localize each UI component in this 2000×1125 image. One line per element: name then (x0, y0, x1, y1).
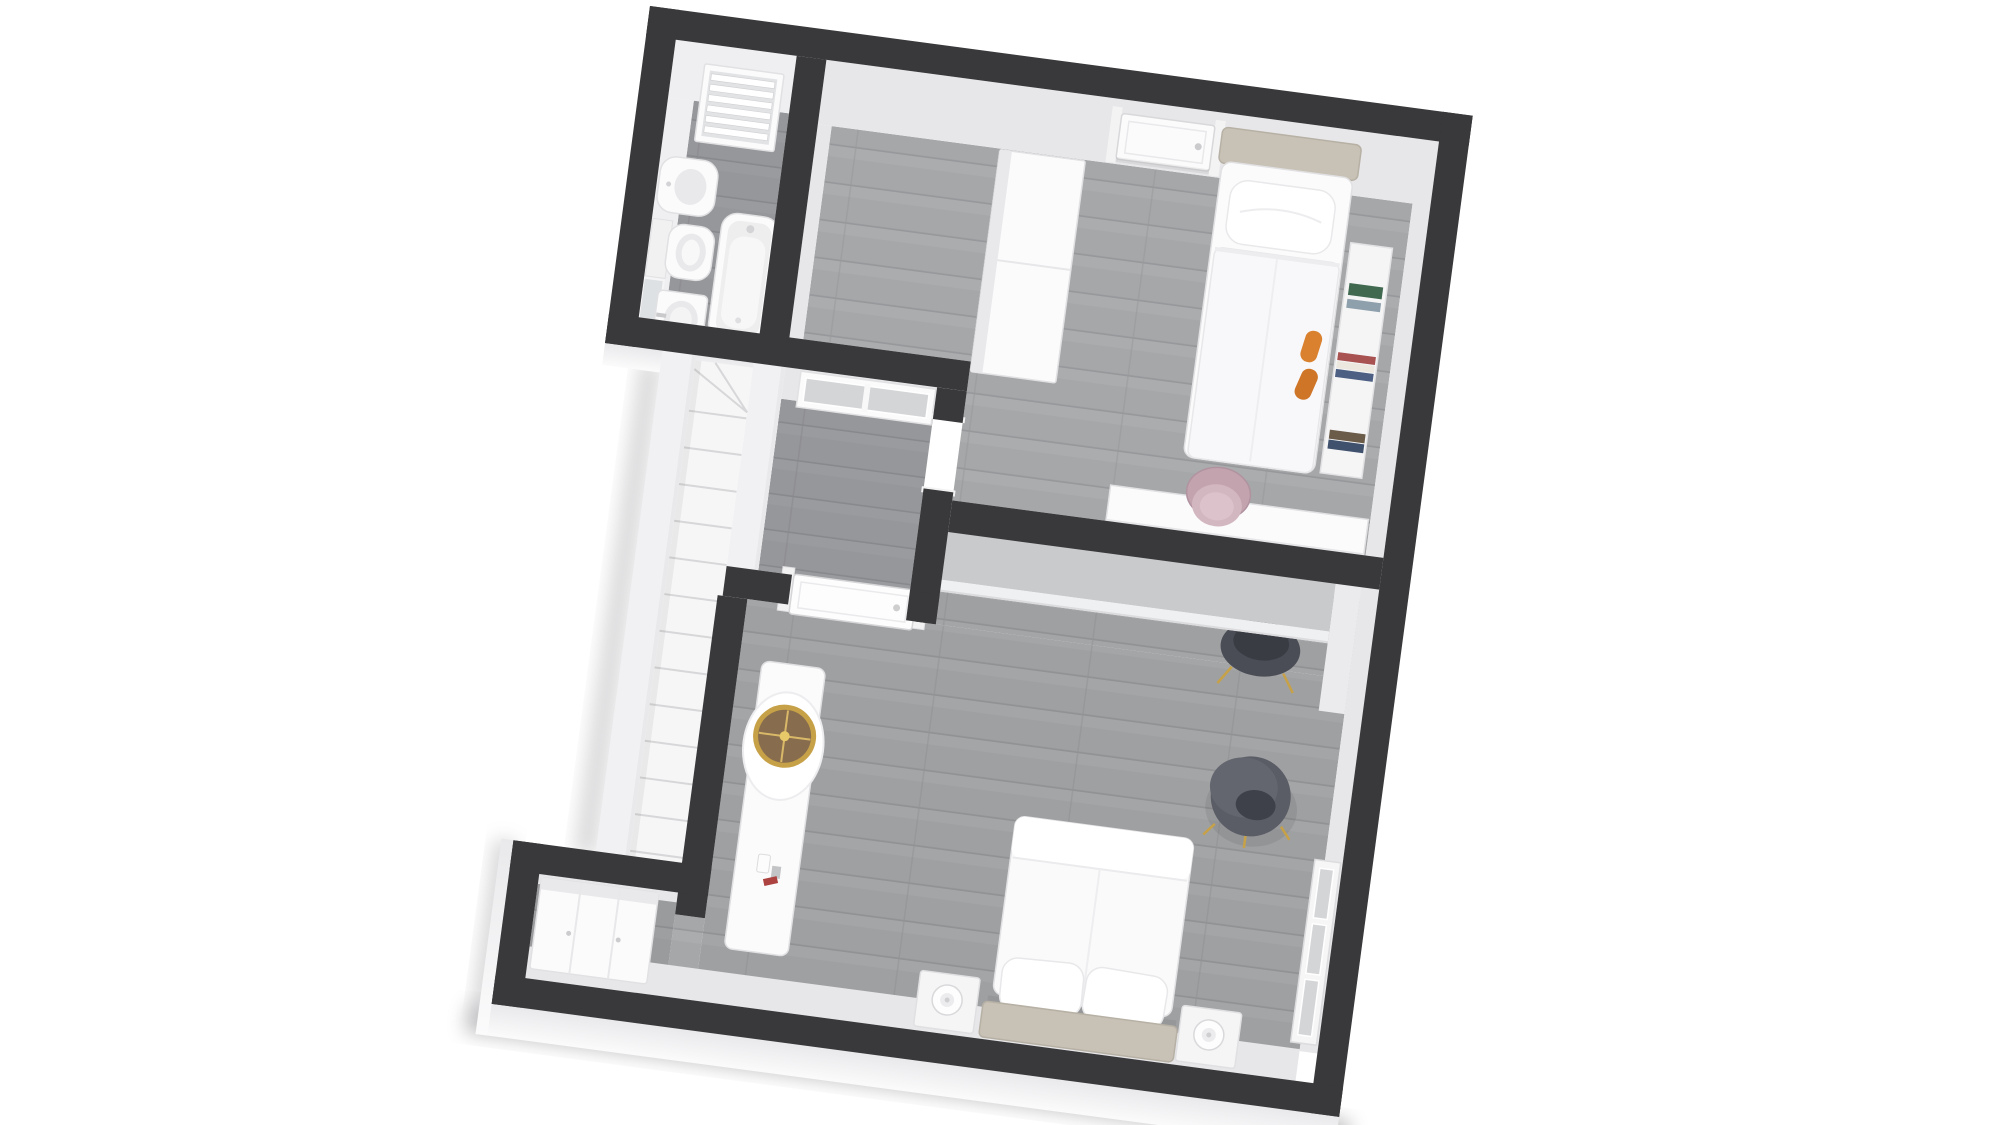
floor-plan-group (465, 0, 1485, 1125)
floor-plan-canvas (0, 0, 2000, 1125)
corner-cabinet (530, 877, 659, 984)
perfume-bottle (756, 854, 770, 873)
nightstand-right (1175, 1005, 1242, 1068)
wall-door-right (915, 592, 940, 625)
floor-plan-svg (0, 0, 2000, 1125)
bidet (655, 155, 720, 218)
single-bed-pillow (1224, 179, 1338, 256)
wall-hallway-right-upper (933, 387, 967, 423)
louver-window (695, 64, 785, 152)
nightstand-left (913, 970, 980, 1033)
toilet (645, 218, 716, 284)
hallway-floor (758, 399, 933, 591)
double-bed (979, 814, 1203, 1062)
bedroom1-pocket-floor (803, 126, 999, 361)
